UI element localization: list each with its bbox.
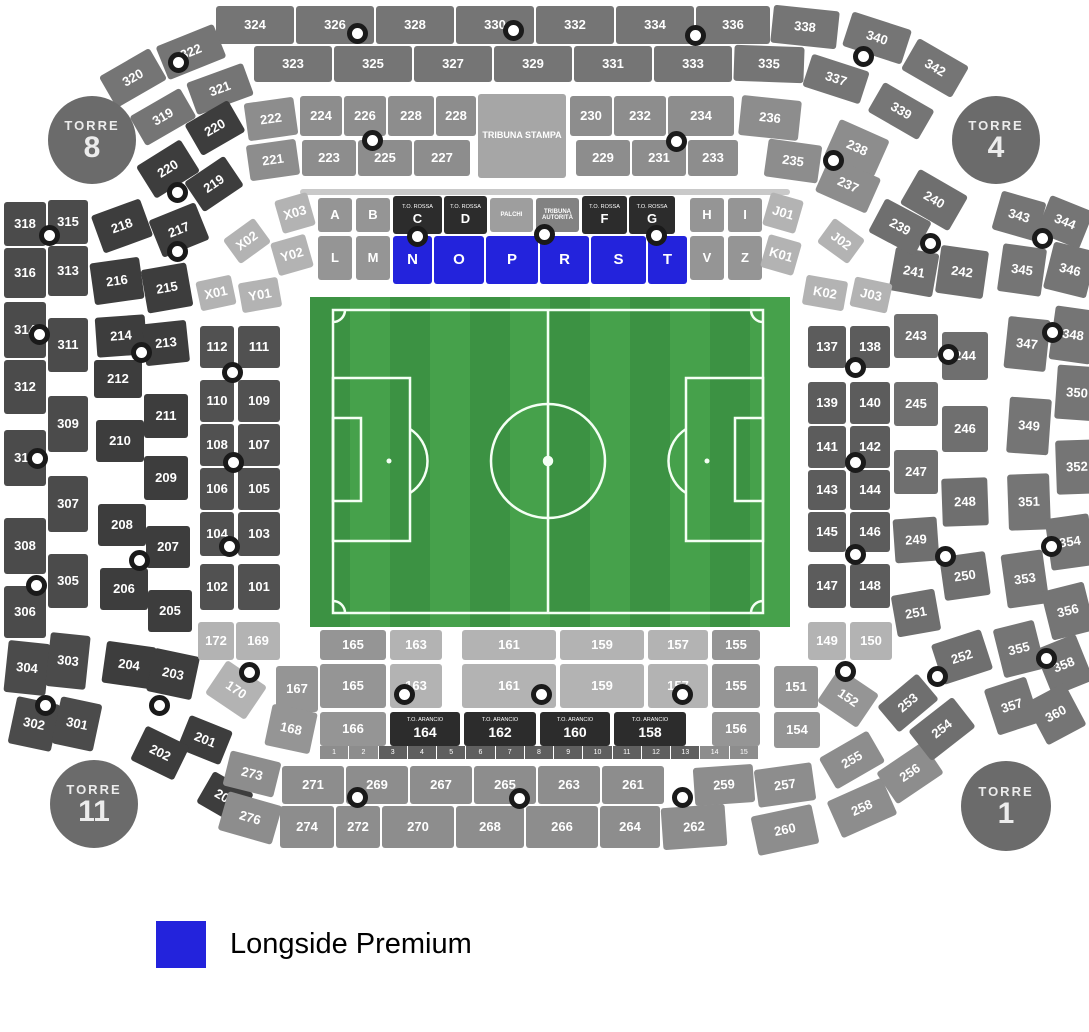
section-247: 247: [894, 450, 938, 494]
tower-4: TORRE4: [952, 96, 1040, 184]
section-v: V: [690, 236, 724, 280]
section-x02: X02: [223, 218, 271, 265]
entrance-gate-icon: [167, 182, 188, 203]
section-137: 137: [808, 326, 846, 368]
section-202: 202: [130, 725, 190, 780]
row-strip-cell-13: 13: [671, 746, 699, 759]
section-106: 106: [200, 468, 234, 510]
section-159: 159: [560, 664, 644, 708]
section-274: 274: [280, 806, 334, 848]
section-159: 159: [560, 630, 644, 660]
section-303: 303: [45, 632, 90, 690]
entrance-gate-icon: [131, 342, 152, 363]
section-313: 313: [48, 246, 88, 296]
section-161: 161: [462, 630, 556, 660]
section-305: 305: [48, 554, 88, 608]
tower-11: TORRE11: [50, 760, 138, 848]
section-107: 107: [238, 424, 280, 466]
section-151: 151: [774, 666, 818, 708]
football-pitch: [310, 297, 790, 627]
section-111: 111: [238, 326, 280, 368]
section-272: 272: [336, 806, 380, 848]
section-228: 228: [436, 96, 476, 136]
row-number-strip: 123456789101112131415: [320, 746, 758, 759]
section-346: 346: [1043, 241, 1089, 298]
row-strip-cell-2: 2: [349, 746, 377, 759]
section-336: 336: [696, 6, 770, 44]
entrance-gate-icon: [853, 46, 874, 67]
section-168: 168: [264, 704, 318, 755]
section-308: 308: [4, 518, 46, 574]
entrance-gate-icon: [219, 536, 240, 557]
row-strip-cell-5: 5: [437, 746, 465, 759]
section-162: T.O. ARANCIO162: [464, 712, 536, 746]
entrance-gate-icon: [27, 448, 48, 469]
section-k02: K02: [802, 275, 849, 312]
entrance-gate-icon: [920, 233, 941, 254]
section-311: 311: [48, 318, 88, 372]
stadium-seating-map: 3243263283303323343363383403423233253273…: [0, 0, 1089, 1032]
section-j02: J02: [817, 218, 865, 265]
section-215: 215: [141, 262, 194, 313]
section-251: 251: [891, 588, 942, 637]
entrance-gate-icon: [222, 362, 243, 383]
section-103: 103: [238, 512, 280, 556]
section-109: 109: [238, 380, 280, 422]
section-232: 232: [614, 96, 666, 136]
entrance-gate-icon: [407, 226, 428, 247]
section-o[interactable]: O: [434, 236, 484, 284]
section-360: 360: [1025, 682, 1086, 745]
section-l: L: [318, 236, 352, 280]
section-316: 316: [4, 248, 46, 298]
section-210: 210: [96, 420, 144, 462]
entrance-gate-icon: [672, 787, 693, 808]
section-349: 349: [1006, 397, 1052, 456]
entrance-gate-icon: [1041, 536, 1062, 557]
legend-color-swatch: [156, 921, 206, 968]
entrance-gate-icon: [685, 25, 706, 46]
entrance-gate-icon: [845, 452, 866, 473]
entrance-gate-icon: [845, 544, 866, 565]
section-201: 201: [177, 715, 233, 766]
entrance-gate-icon: [39, 225, 60, 246]
section-248: 248: [941, 477, 989, 527]
section-339: 339: [867, 82, 934, 140]
entrance-gate-icon: [531, 684, 552, 705]
entrance-gate-icon: [1042, 322, 1063, 343]
section-270: 270: [382, 806, 454, 848]
entrance-gate-icon: [823, 150, 844, 171]
section-155: 155: [712, 664, 760, 708]
section-224: 224: [300, 96, 342, 136]
section-105: 105: [238, 468, 280, 510]
section-249: 249: [893, 517, 940, 564]
section-i: I: [728, 198, 762, 232]
section-262: 262: [661, 804, 728, 850]
legend: Longside Premium: [156, 921, 472, 968]
section-148: 148: [850, 564, 890, 608]
section-156: 156: [712, 712, 760, 746]
section-m: M: [356, 236, 390, 280]
section-j01: J01: [762, 192, 804, 234]
entrance-gate-icon: [534, 224, 555, 245]
section-226: 226: [344, 96, 386, 136]
row-strip-cell-6: 6: [466, 746, 494, 759]
section-d: T.O. ROSSAD: [444, 196, 487, 234]
entrance-gate-icon: [35, 695, 56, 716]
section-323: 323: [254, 46, 332, 82]
row-strip-cell-12: 12: [642, 746, 670, 759]
tower-1: TORRE1: [961, 761, 1051, 851]
section-246: 246: [942, 406, 988, 452]
entrance-gate-icon: [167, 241, 188, 262]
entrance-gate-icon: [223, 452, 244, 473]
row-strip-cell-15: 15: [730, 746, 758, 759]
section-b: B: [356, 198, 390, 232]
entrance-gate-icon: [26, 575, 47, 596]
section-101: 101: [238, 564, 280, 610]
section-338: 338: [770, 5, 840, 50]
row-strip-cell-4: 4: [408, 746, 436, 759]
section-s[interactable]: S: [591, 236, 646, 284]
section-150: 150: [850, 622, 892, 660]
section-304: 304: [3, 640, 50, 696]
entrance-gate-icon: [129, 550, 150, 571]
row-strip-cell-3: 3: [379, 746, 407, 759]
section-233: 233: [688, 140, 738, 176]
section-235: 235: [764, 138, 823, 183]
section-j03: J03: [849, 276, 892, 313]
section-y01: Y01: [238, 277, 283, 313]
section-139: 139: [808, 382, 846, 424]
section-261: 261: [602, 766, 664, 804]
section-259: 259: [693, 764, 756, 806]
section-157: 157: [648, 630, 708, 660]
entrance-gate-icon: [239, 662, 260, 683]
section-160: T.O. ARANCIO160: [540, 712, 610, 746]
section-172: 172: [198, 622, 234, 660]
section-f: T.O. ROSSAF: [582, 196, 627, 234]
section-345: 345: [997, 243, 1047, 297]
entrance-gate-icon: [347, 787, 368, 808]
section-110: 110: [200, 380, 234, 422]
entrance-gate-icon: [1036, 648, 1057, 669]
section-229: 229: [576, 140, 630, 176]
row-strip-cell-1: 1: [320, 746, 348, 759]
section-245: 245: [894, 382, 938, 426]
section-140: 140: [850, 382, 890, 424]
entrance-gate-icon: [835, 661, 856, 682]
entrance-gate-icon: [938, 344, 959, 365]
section-309: 309: [48, 396, 88, 452]
section-208: 208: [98, 504, 146, 546]
section-271: 271: [282, 766, 344, 804]
section-228: 228: [388, 96, 434, 136]
section-102: 102: [200, 564, 234, 610]
section-301: 301: [51, 696, 102, 752]
entrance-gate-icon: [666, 131, 687, 152]
entrance-gate-icon: [394, 684, 415, 705]
section-220: 220: [184, 100, 245, 156]
section-149: 149: [808, 622, 846, 660]
entrance-gate-icon: [935, 546, 956, 567]
section-329: 329: [494, 46, 572, 82]
section-163: 163: [390, 630, 442, 660]
section-331: 331: [574, 46, 652, 82]
section-333: 333: [654, 46, 732, 82]
legend-label: Longside Premium: [230, 928, 472, 961]
section-147: 147: [808, 564, 846, 608]
section-155: 155: [712, 630, 760, 660]
section-p[interactable]: P: [486, 236, 538, 284]
row-strip-cell-9: 9: [554, 746, 582, 759]
section-325: 325: [334, 46, 412, 82]
section-347: 347: [1003, 316, 1050, 372]
section-342: 342: [901, 38, 969, 98]
section-141: 141: [808, 426, 846, 468]
entrance-gate-icon: [29, 324, 50, 345]
section-144: 144: [850, 470, 890, 510]
entrance-gate-icon: [347, 23, 368, 44]
section-264: 264: [600, 806, 660, 848]
section-k01: K01: [760, 234, 802, 276]
entrance-gate-icon: [672, 684, 693, 705]
section-267: 267: [410, 766, 472, 804]
section-257: 257: [754, 762, 817, 808]
section-216: 216: [89, 257, 144, 306]
section-328: 328: [376, 6, 454, 44]
row-strip-cell-7: 7: [496, 746, 524, 759]
section-260: 260: [751, 804, 820, 856]
entrance-gate-icon: [646, 225, 667, 246]
section-x03: X03: [274, 192, 316, 234]
section-165: 165: [320, 630, 386, 660]
entrance-gate-icon: [509, 788, 530, 809]
section-212: 212: [94, 360, 142, 398]
section-334: 334: [616, 6, 694, 44]
entrance-gate-icon: [362, 130, 383, 151]
entrance-gate-icon: [845, 357, 866, 378]
section-266: 266: [526, 806, 598, 848]
entrance-gate-icon: [1032, 228, 1053, 249]
section-a: A: [318, 198, 352, 232]
section-236: 236: [738, 95, 802, 141]
section-268: 268: [456, 806, 524, 848]
section-207: 207: [146, 526, 190, 568]
section-palchi: PALCHI: [490, 198, 533, 232]
section-166: 166: [320, 712, 386, 746]
section-221: 221: [246, 139, 301, 182]
section-143: 143: [808, 470, 846, 510]
section-263: 263: [538, 766, 600, 804]
section-222: 222: [244, 97, 299, 142]
section-154: 154: [774, 712, 820, 748]
section-205: 205: [148, 590, 192, 632]
section-203: 203: [146, 648, 200, 701]
section-h: H: [690, 198, 724, 232]
section-y02: Y02: [270, 234, 314, 277]
entrance-gate-icon: [149, 695, 170, 716]
section-169: 169: [236, 622, 280, 660]
section-332: 332: [536, 6, 614, 44]
row-strip-cell-11: 11: [613, 746, 641, 759]
section-230: 230: [570, 96, 612, 136]
section-234: 234: [668, 96, 734, 136]
section-276: 276: [218, 791, 283, 845]
section-324: 324: [216, 6, 294, 44]
section-243: 243: [894, 314, 938, 358]
section-211: 211: [144, 394, 188, 438]
section-z: Z: [728, 236, 762, 280]
entrance-gate-icon: [168, 52, 189, 73]
section-223: 223: [302, 140, 356, 176]
section-165: 165: [320, 664, 386, 708]
section-335: 335: [733, 45, 804, 83]
entrance-gate-icon: [927, 666, 948, 687]
section-307: 307: [48, 476, 88, 532]
tower-8: TORRE8: [48, 96, 136, 184]
section-227: 227: [414, 140, 470, 176]
section-312: 312: [4, 360, 46, 414]
section-218: 218: [91, 198, 154, 253]
entrance-gate-icon: [503, 20, 524, 41]
section-209: 209: [144, 456, 188, 500]
section-352: 352: [1055, 439, 1089, 494]
section-319: 319: [129, 88, 196, 146]
section-350: 350: [1054, 365, 1089, 422]
section-206: 206: [100, 568, 148, 610]
section-x01: X01: [195, 275, 236, 312]
section-tribuna-stampa: TRIBUNA STAMPA: [478, 94, 566, 178]
section-158: T.O. ARANCIO158: [614, 712, 686, 746]
section-164: T.O. ARANCIO164: [390, 712, 460, 746]
row-strip-cell-14: 14: [700, 746, 728, 759]
row-strip-cell-10: 10: [583, 746, 611, 759]
section-327: 327: [414, 46, 492, 82]
section-242: 242: [935, 245, 989, 299]
section-145: 145: [808, 512, 846, 552]
section-356: 356: [1041, 581, 1089, 640]
row-strip-cell-8: 8: [525, 746, 553, 759]
